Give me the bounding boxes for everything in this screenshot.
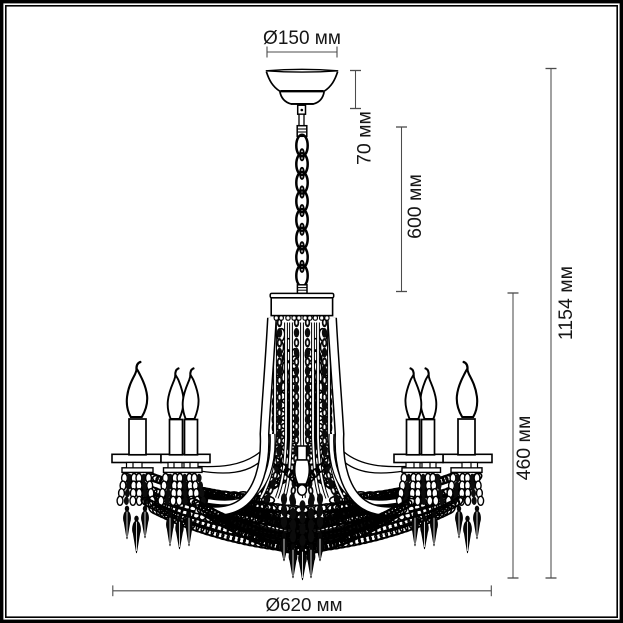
svg-text:70 мм: 70 мм [354,111,376,165]
svg-text:600 мм: 600 мм [404,174,426,239]
svg-text:460 мм: 460 мм [513,416,535,481]
svg-text:Ø150 мм: Ø150 мм [263,28,341,49]
svg-text:Ø620 мм: Ø620 мм [266,594,343,615]
svg-text:1154 мм: 1154 мм [555,266,577,340]
